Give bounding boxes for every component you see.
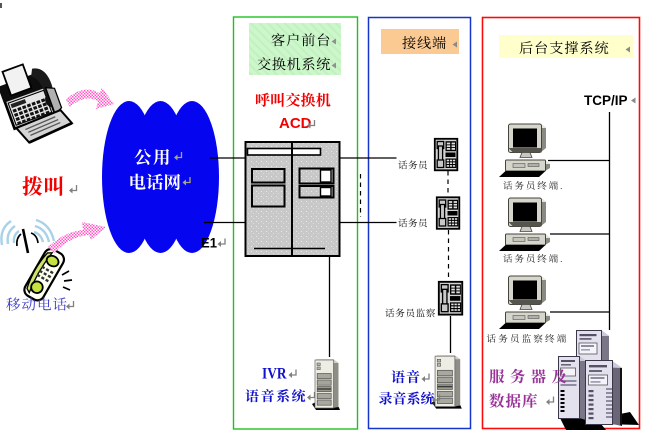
svg-text:TCP/IP: TCP/IP — [584, 93, 628, 108]
svg-text:IVR: IVR — [262, 366, 287, 383]
svg-text:ACD: ACD — [279, 115, 312, 132]
svg-text:.: . — [560, 181, 563, 191]
svg-text:.: . — [560, 254, 563, 264]
svg-text:E1: E1 — [201, 236, 217, 251]
